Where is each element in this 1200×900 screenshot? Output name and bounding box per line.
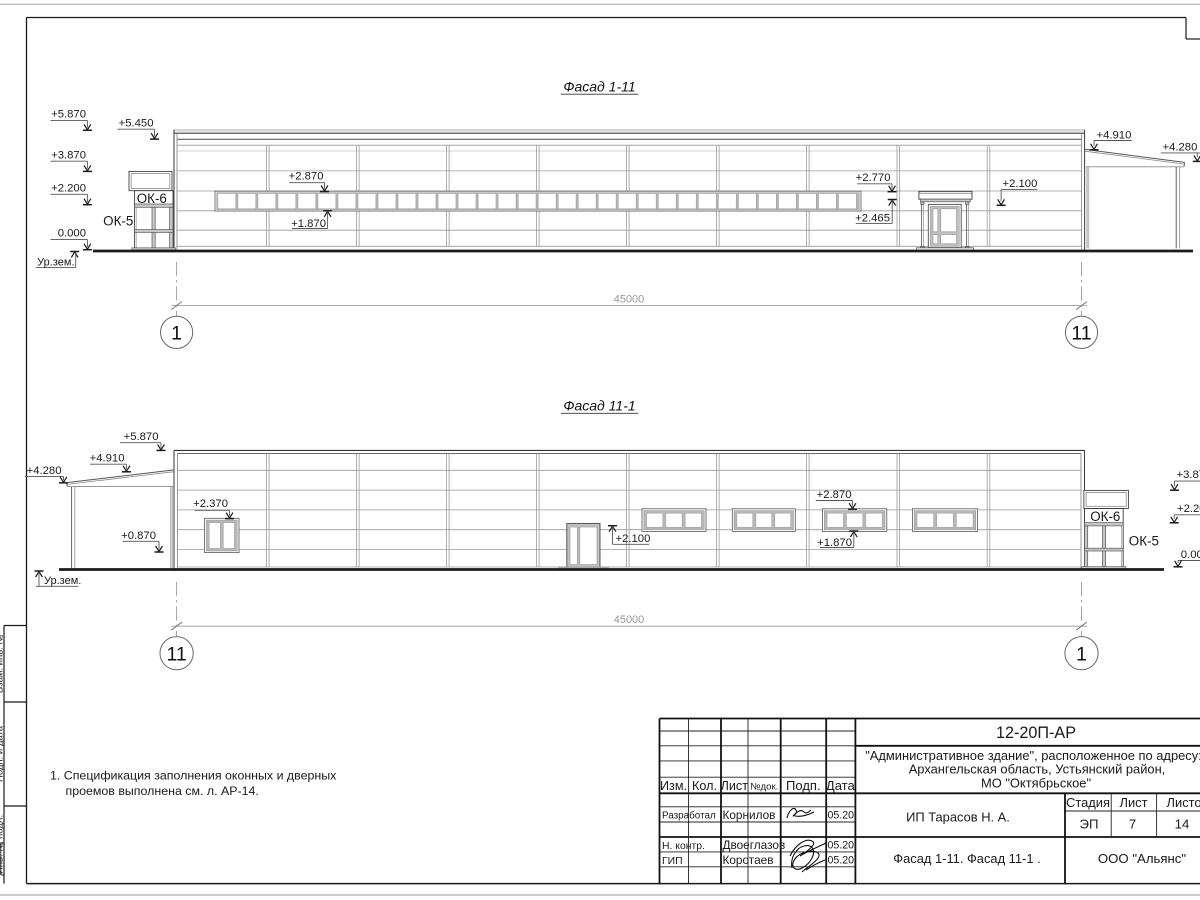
svg-text:ИП Тарасов Н. А.: ИП Тарасов Н. А. [906, 810, 1010, 825]
svg-text:МО "Октябрьское": МО "Октябрьское" [981, 776, 1091, 791]
svg-text:+5.450: +5.450 [119, 118, 154, 130]
svg-text:+2.770: +2.770 [856, 172, 891, 184]
svg-text:1. Спецификация заполнения око: 1. Спецификация заполнения оконных и две… [50, 768, 337, 782]
svg-text:11: 11 [166, 643, 186, 665]
svg-text:05.20: 05.20 [828, 855, 855, 867]
svg-text:Лист: Лист [1119, 795, 1147, 810]
svg-text:Разработал: Разработал [662, 811, 716, 822]
svg-text:Подп.: Подп. [786, 778, 821, 793]
svg-text:1: 1 [1076, 643, 1087, 665]
svg-text:Лист: Лист [721, 779, 749, 793]
svg-text:+2.370: +2.370 [193, 498, 228, 510]
svg-text:+1.870: +1.870 [817, 537, 852, 549]
svg-text:ЭП: ЭП [1080, 816, 1099, 831]
svg-text:Фасад 1-11: Фасад 1-11 [563, 79, 635, 95]
svg-text:Фасад 11-1: Фасад 11-1 [563, 398, 635, 414]
svg-text:ОК-6: ОК-6 [137, 191, 167, 206]
svg-text:+3.870: +3.870 [51, 149, 86, 161]
svg-text:ОК-5: ОК-5 [103, 214, 133, 229]
svg-text:Кол.: Кол. [692, 779, 717, 793]
svg-text:05.20: 05.20 [828, 809, 855, 821]
svg-text:Подп. и дата: Подп. и дата [0, 725, 6, 782]
svg-text:+0.870: +0.870 [121, 530, 156, 542]
svg-text:+1.870: +1.870 [291, 218, 326, 230]
svg-text:+2.870: +2.870 [817, 489, 852, 501]
svg-text:Взам. инв. №: Взам. инв. № [0, 634, 6, 693]
svg-text:Коротаев: Коротаев [723, 853, 774, 867]
svg-text:12-20П-АР: 12-20П-АР [996, 724, 1076, 742]
svg-text:+2.100: +2.100 [616, 533, 651, 545]
svg-text:№док.: №док. [750, 781, 778, 792]
svg-text:+4.910: +4.910 [90, 452, 125, 464]
svg-text:+4.280: +4.280 [1163, 142, 1198, 154]
svg-text:+2.870: +2.870 [289, 171, 324, 183]
svg-text:Фасад 1-11. Фасад 11-1 .: Фасад 1-11. Фасад 11-1 . [893, 851, 1040, 866]
svg-text:Листов: Листов [1167, 795, 1200, 810]
svg-text:+5.870: +5.870 [124, 431, 159, 443]
svg-text:45000: 45000 [614, 614, 645, 626]
svg-text:+2.100: +2.100 [1003, 178, 1038, 190]
svg-text:Двоеглазов: Двоеглазов [723, 838, 786, 852]
svg-text:Н. контр.: Н. контр. [662, 841, 705, 852]
svg-text:ОК-5: ОК-5 [1129, 534, 1159, 549]
svg-text:Инв. № подл.: Инв. № подл. [0, 815, 6, 874]
svg-text:ООО "Альянс": ООО "Альянс" [1098, 851, 1186, 866]
svg-text:14: 14 [1175, 816, 1190, 831]
svg-text:Изм.: Изм. [660, 779, 687, 793]
svg-text:0.000: 0.000 [58, 227, 86, 239]
svg-text:+2.200: +2.200 [1177, 503, 1200, 515]
svg-text:+3.870: +3.870 [1177, 469, 1200, 481]
svg-text:+2.465: +2.465 [855, 213, 890, 225]
svg-text:Стадия: Стадия [1066, 795, 1110, 810]
svg-text:45000: 45000 [614, 293, 645, 305]
svg-text:+2.200: +2.200 [51, 182, 86, 194]
svg-text:Архангельская область, Устьянс: Архангельская область, Устьянский район, [909, 762, 1166, 777]
svg-text:Дата: Дата [826, 778, 856, 793]
svg-text:Корнилов: Корнилов [723, 808, 776, 822]
svg-text:7: 7 [1129, 816, 1136, 831]
svg-text:ГИП: ГИП [662, 856, 683, 867]
svg-text:+4.280: +4.280 [27, 465, 62, 477]
svg-text:ОК-6: ОК-6 [1090, 509, 1120, 524]
svg-text:0.000: 0.000 [1181, 549, 1200, 561]
svg-text:11: 11 [1071, 322, 1091, 344]
svg-text:Ур.зем.: Ур.зем. [37, 256, 74, 268]
svg-text:+4.910: +4.910 [1097, 129, 1132, 141]
svg-text:05.20: 05.20 [828, 840, 855, 852]
svg-text:+5.870: +5.870 [51, 109, 86, 121]
svg-text:проемов выполнена см. л. АР-14: проемов выполнена см. л. АР-14. [66, 784, 259, 798]
svg-text:Ур.зем.: Ур.зем. [44, 575, 81, 587]
svg-text:1: 1 [171, 322, 182, 344]
